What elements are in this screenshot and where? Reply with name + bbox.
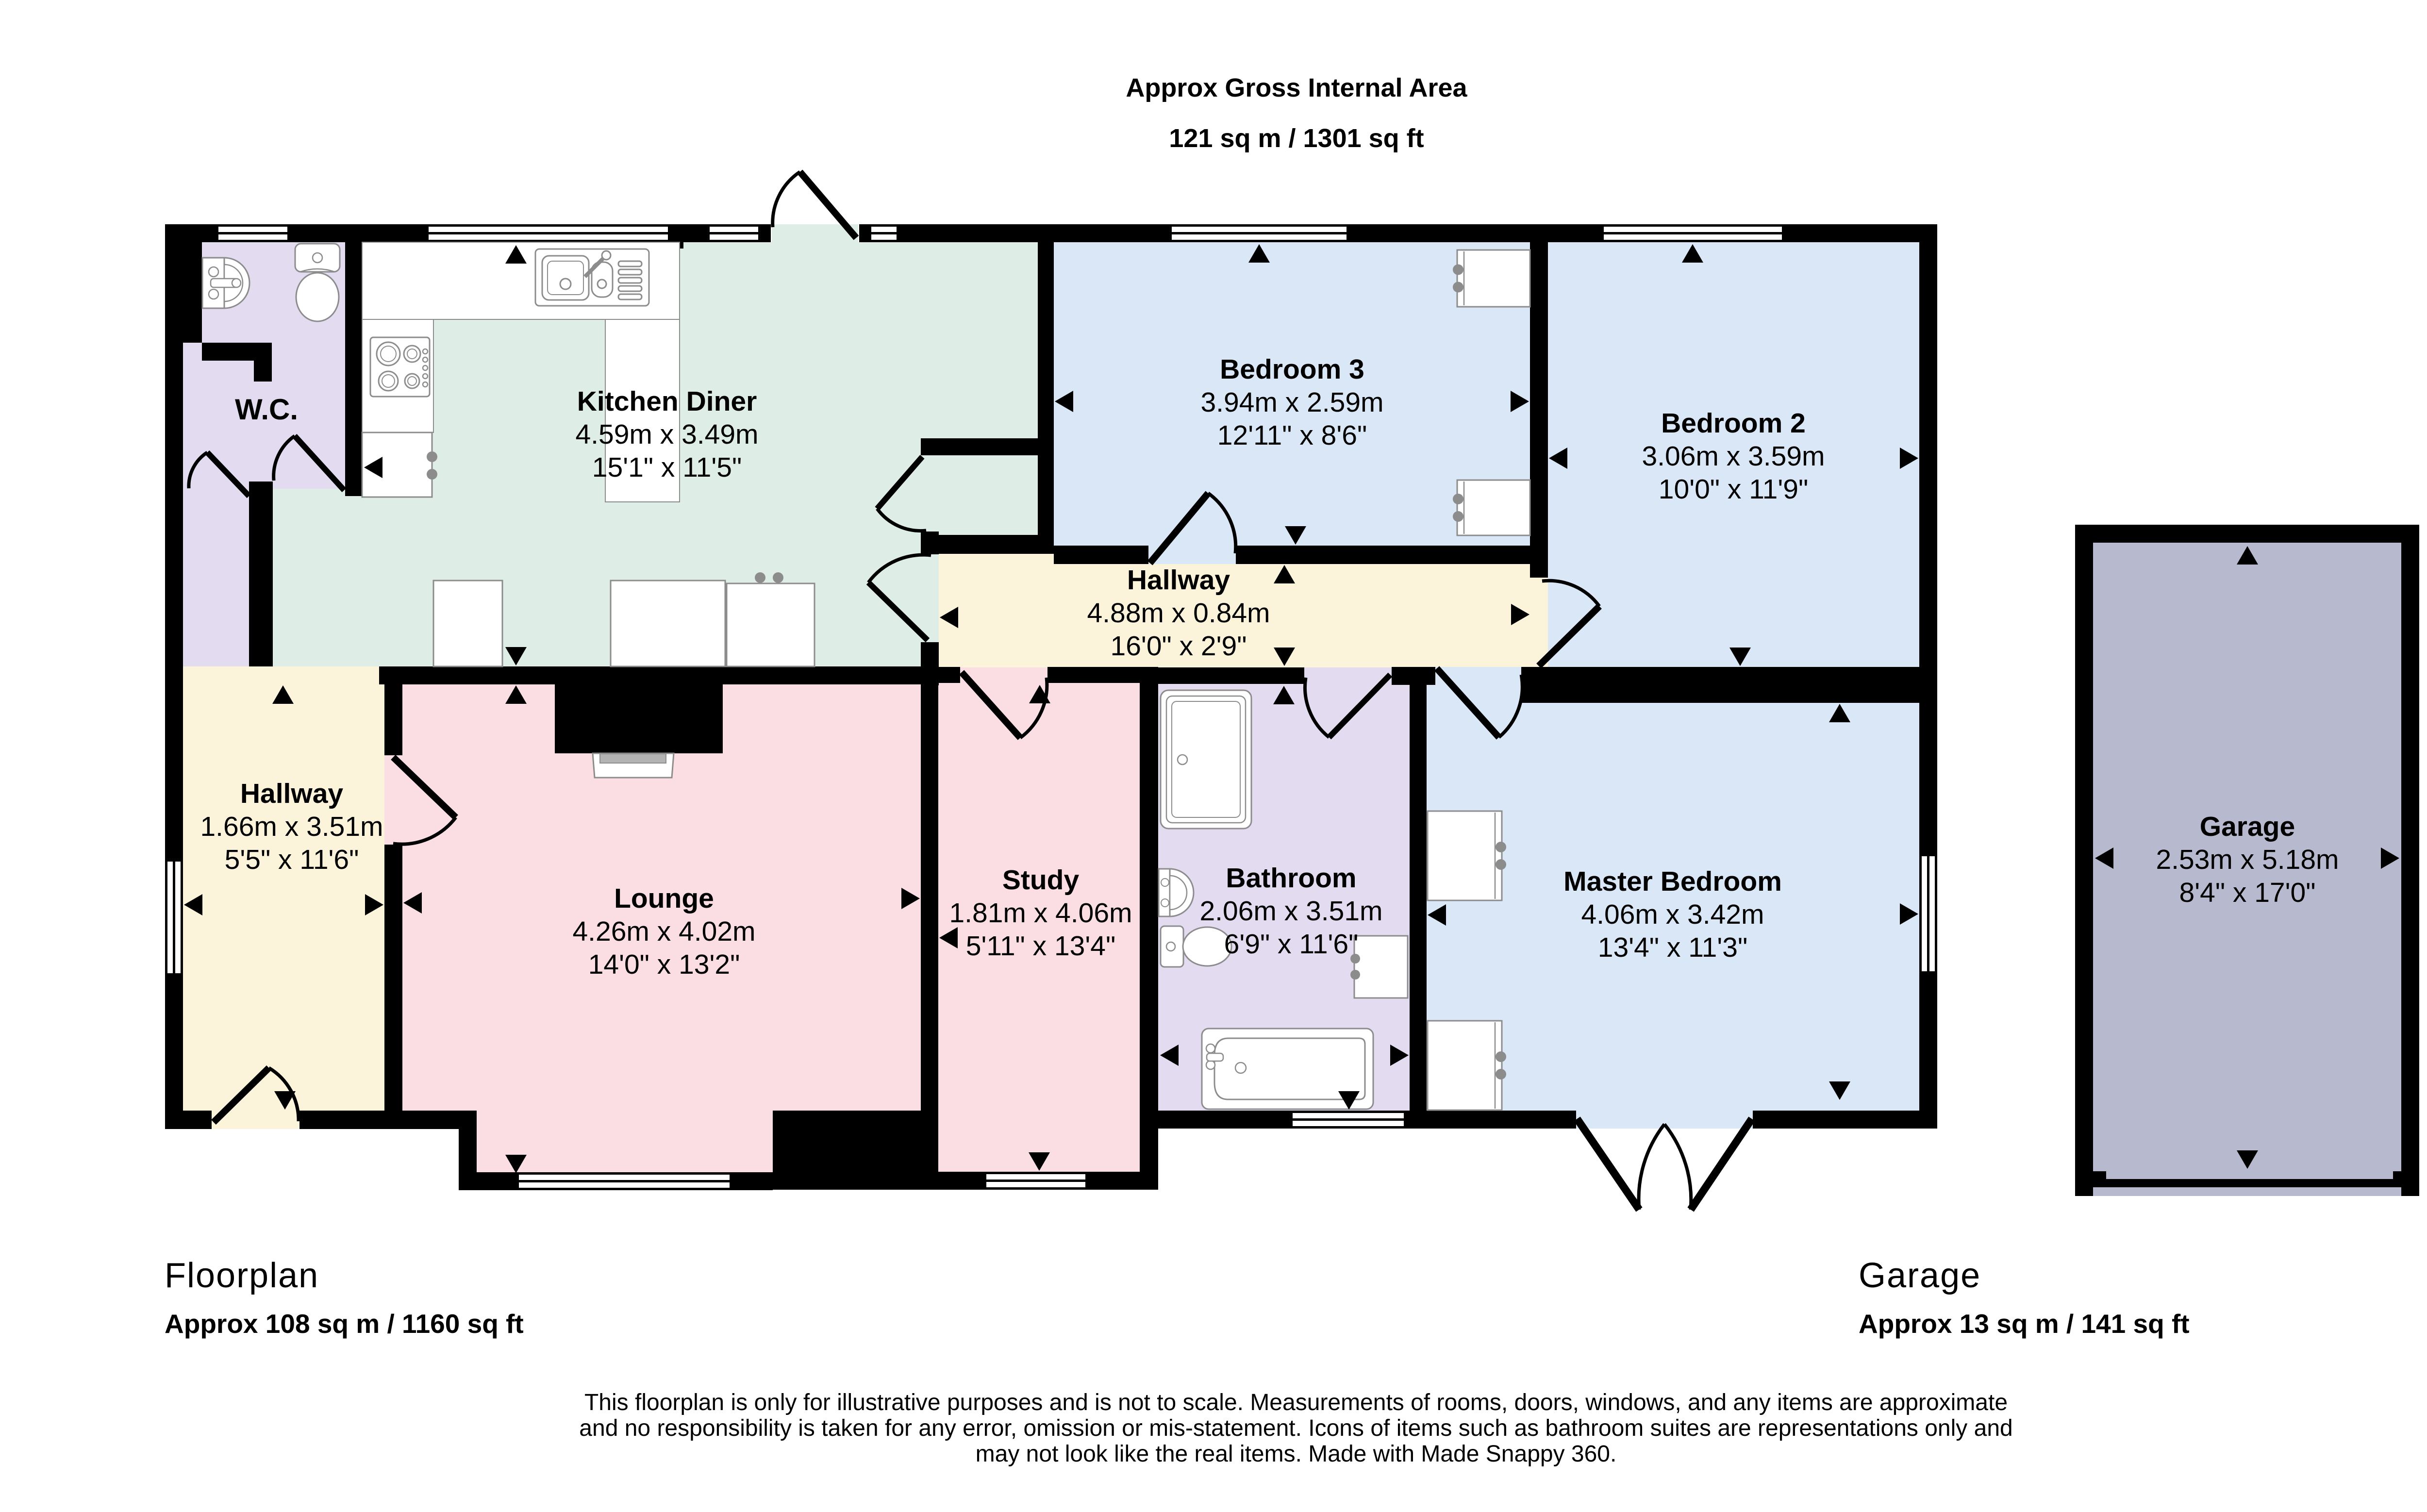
svg-text:Lounge: Lounge	[614, 883, 714, 914]
svg-text:may not look like the real ite: may not look like the real items. Made w…	[976, 1441, 1617, 1467]
svg-text:Hallway: Hallway	[1127, 565, 1230, 596]
svg-text:3.06m x 3.59m: 3.06m x 3.59m	[1642, 441, 1825, 472]
svg-text:Kitchen Diner: Kitchen Diner	[577, 386, 757, 417]
svg-text:Master Bedroom: Master Bedroom	[1563, 866, 1782, 897]
svg-text:Bathroom: Bathroom	[1226, 863, 1356, 894]
svg-text:12'11" x 8'6": 12'11" x 8'6"	[1217, 420, 1367, 451]
svg-text:13'4" x 11'3": 13'4" x 11'3"	[1598, 932, 1747, 963]
svg-text:1.66m x 3.51m: 1.66m x 3.51m	[200, 811, 383, 842]
svg-text:Bedroom 2: Bedroom 2	[1661, 408, 1806, 439]
svg-text:6'9" x 11'6": 6'9" x 11'6"	[1224, 929, 1359, 960]
svg-text:4.26m x 4.02m: 4.26m x 4.02m	[572, 916, 755, 947]
svg-text:16'0" x 2'9": 16'0" x 2'9"	[1111, 631, 1247, 662]
svg-text:8'4" x 17'0": 8'4" x 17'0"	[2179, 877, 2316, 908]
svg-text:4.59m x 3.49m: 4.59m x 3.49m	[575, 419, 758, 450]
svg-text:Approx Gross Internal Area: Approx Gross Internal Area	[1126, 73, 1467, 102]
svg-text:Floorplan: Floorplan	[165, 1256, 319, 1295]
svg-text:5'5" x 11'6": 5'5" x 11'6"	[225, 844, 359, 875]
svg-text:and no responsibility is taken: and no responsibility is taken for any e…	[579, 1415, 2012, 1441]
svg-text:Hallway: Hallway	[240, 778, 344, 809]
svg-text:Approx 13 sq m / 141 sq ft: Approx 13 sq m / 141 sq ft	[1859, 1309, 2190, 1339]
svg-text:14'0" x 13'2": 14'0" x 13'2"	[588, 949, 740, 980]
svg-text:3.94m x 2.59m: 3.94m x 2.59m	[1200, 387, 1383, 418]
svg-text:1.81m x 4.06m: 1.81m x 4.06m	[949, 897, 1132, 929]
svg-text:121 sq m / 1301 sq ft: 121 sq m / 1301 sq ft	[1169, 124, 1424, 153]
svg-text:5'11" x 13'4": 5'11" x 13'4"	[966, 930, 1115, 962]
svg-text:Garage: Garage	[2200, 811, 2295, 842]
svg-text:4.06m x 3.42m: 4.06m x 3.42m	[1581, 899, 1764, 930]
svg-text:Bedroom 3: Bedroom 3	[1220, 354, 1364, 385]
svg-text:Study: Study	[1002, 864, 1080, 896]
svg-text:15'1" x 11'5": 15'1" x 11'5"	[592, 452, 742, 483]
svg-text:10'0" x 11'9": 10'0" x 11'9"	[1659, 474, 1808, 505]
svg-text:4.88m x 0.84m: 4.88m x 0.84m	[1087, 598, 1270, 629]
svg-text:2.53m x 5.18m: 2.53m x 5.18m	[2156, 844, 2339, 875]
svg-text:W.C.: W.C.	[235, 393, 298, 426]
svg-text:Garage: Garage	[1859, 1256, 1981, 1295]
svg-text:Approx 108 sq m / 1160 sq ft: Approx 108 sq m / 1160 sq ft	[165, 1309, 524, 1339]
svg-text:This floorplan is only for ill: This floorplan is only for illustrative …	[584, 1390, 2008, 1415]
svg-text:2.06m x 3.51m: 2.06m x 3.51m	[1199, 896, 1382, 927]
